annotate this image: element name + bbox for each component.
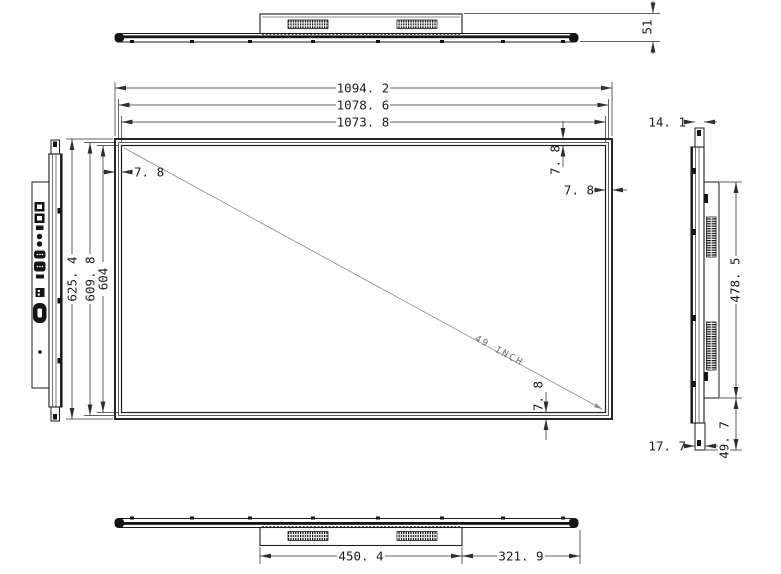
dim-label-overall-width: 1094. 2 [337,81,390,96]
dim-label-bezel-left: 7. 8 [134,165,164,180]
serial-pin [37,266,39,268]
dim-label-bottom-thickness: 17. 7 [648,439,686,454]
mount-tick [440,517,444,520]
mount-tick [190,40,194,43]
tab-mark [53,142,57,148]
strip-mark [692,168,696,174]
dim-widths: 1094. 2 1078. 6 1073. 8 [115,81,612,144]
mount-tick [501,40,505,43]
end-cap [569,34,578,43]
housing-latch [704,372,708,381]
mount-tick [130,40,134,43]
top-view [115,14,578,43]
drawing-canvas: 51 49 INCH 1094. 2 1078. 6 1073. 8 [0,0,781,574]
diagonal-size-label: 49 INCH [473,333,526,369]
power-switch [36,288,45,297]
dim-label-top-thickness: 14. 1 [648,115,686,130]
vga-pin [42,254,44,256]
dim-label-bezel-top: 7. 8 [548,145,563,175]
mount-tick [311,517,315,520]
strip-mark [58,358,62,364]
bottom-view [115,517,578,546]
mount-tick [248,517,252,520]
dim-label-overall-height: 625. 4 [65,256,80,301]
strip-mark [692,229,696,235]
mount-tick [376,40,380,43]
diagonal-line [124,148,602,409]
dim-label-active-height: 604 [96,268,111,291]
end-cap [115,519,124,528]
usb-port-2-slot [37,216,42,221]
dim-label-housing-to-edge: 321. 9 [498,549,543,564]
usb-port-1-slot [37,205,42,210]
switch-dot [38,290,40,292]
dim-bezels: 7. 8 7. 8 7. 8 7. 8 [103,121,627,440]
switch-dot [38,294,40,296]
right-side-view [691,128,719,450]
serial-pin [42,266,44,268]
strip-mark [58,298,62,304]
dim-top-thickness: 51 [464,1,660,54]
dim-label-bezel-right: 7. 8 [564,183,594,198]
mount-tick [311,40,315,43]
dim-label-housing-height: 478. 5 [728,257,743,302]
mount-tick [561,517,565,520]
technical-drawing-svg: 51 49 INCH 1094. 2 1078. 6 1073. 8 [0,0,781,574]
connector-housing [32,182,49,388]
audio-jack-1 [37,234,42,239]
mount-tick [376,517,380,520]
end-cap [115,34,124,43]
io-ports [33,202,47,354]
serial-pin [39,266,41,268]
left-side-view [32,140,62,421]
dim-label-bezel-bottom: 7. 8 [531,381,546,411]
mount-tick [130,517,134,520]
mount-tick [501,517,505,520]
vga-pin [39,254,41,256]
strip-mark [58,208,62,214]
dim-label-51: 51 [640,19,655,34]
dim-label-housing-width: 450. 4 [338,549,383,564]
mount-tick [440,40,444,43]
tab-mark [53,414,57,420]
mount-tick [190,517,194,520]
vent-grille [288,20,328,29]
top-panel-glass-line [118,35,575,38]
indicator-dot [38,350,42,354]
dim-heights: 625. 4 609. 8 604 [65,139,120,419]
vga-pin [37,254,39,256]
tab-mark [697,130,701,136]
audio-jack-2 [37,241,42,246]
strip-mark [692,315,696,321]
mount-tick [561,40,565,43]
dim-label-mid-width: 1078. 6 [337,98,390,113]
slim-port [36,275,44,279]
vent-grille [397,532,437,541]
front-view: 49 INCH [115,139,612,419]
strip-mark [692,381,696,387]
hdmi-port [36,226,44,231]
end-cap [569,519,578,528]
dim-label-housing-to-bottom: 49. 7 [717,421,732,459]
vent-grille [397,20,437,29]
vent-grille [288,532,328,541]
dim-label-active-width: 1073. 8 [337,115,390,130]
mount-tick [248,40,252,43]
tab-mark [697,440,701,446]
power-inlet-slot [38,309,43,318]
bottom-panel-glass-line [118,522,575,525]
housing-latch [704,194,708,203]
